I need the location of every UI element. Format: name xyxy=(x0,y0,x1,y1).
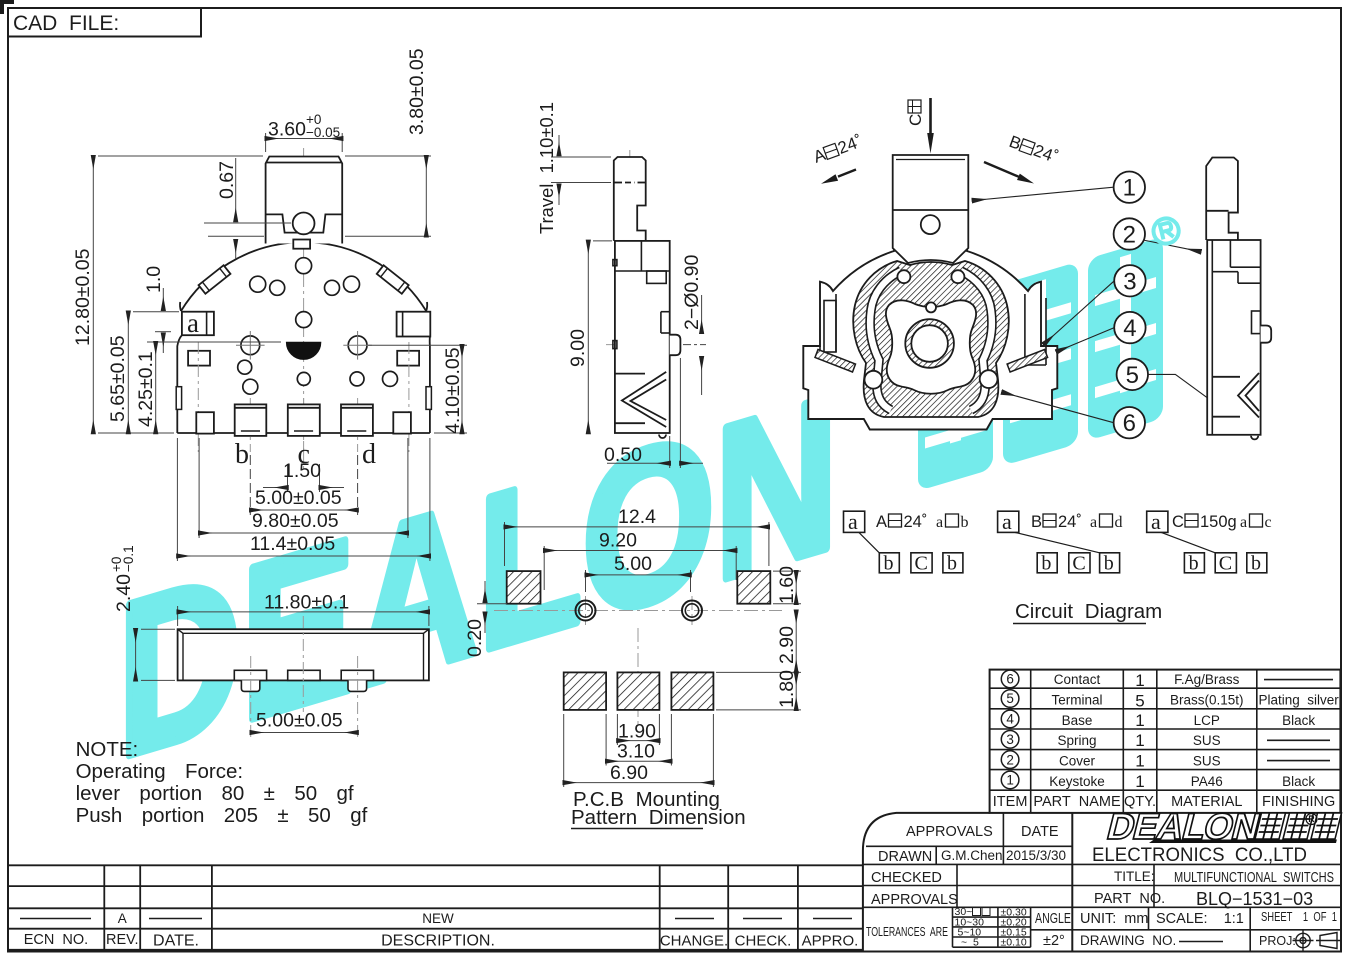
svg-text:Operating Force:: Operating Force: xyxy=(76,760,244,783)
svg-text:2: 2 xyxy=(1123,222,1136,249)
svg-text:FINISHING: FINISHING xyxy=(1262,794,1335,810)
svg-text:3: 3 xyxy=(1006,732,1014,747)
svg-text:C: C xyxy=(1219,553,1232,575)
svg-text:PROJ:: PROJ: xyxy=(1259,934,1296,948)
svg-text:Base: Base xyxy=(1062,713,1093,728)
svg-text:APPROVALS: APPROVALS xyxy=(906,824,993,840)
svg-text:2.90: 2.90 xyxy=(776,626,798,664)
svg-text:SCALE: 1:1: SCALE: 1:1 xyxy=(1156,911,1244,927)
svg-text:6.90: 6.90 xyxy=(610,762,648,784)
svg-text:1.90: 1.90 xyxy=(618,721,656,743)
svg-text:b: b xyxy=(1104,553,1114,575)
svg-text:5: 5 xyxy=(1135,692,1144,711)
svg-text:Spring: Spring xyxy=(1057,733,1096,748)
svg-text:PA46: PA46 xyxy=(1191,774,1223,789)
svg-text:Keystoke: Keystoke xyxy=(1049,774,1105,789)
svg-text:LCP: LCP xyxy=(1194,713,1220,728)
svg-text:~ 5: ~ 5 xyxy=(961,936,979,948)
svg-text:2: 2 xyxy=(1006,752,1014,767)
svg-text:Pattern Dimension: Pattern Dimension xyxy=(571,806,746,829)
svg-text:−0.1: −0.1 xyxy=(121,545,136,572)
svg-text:DESCRIPTION.: DESCRIPTION. xyxy=(381,933,495,950)
svg-text:24˚: 24˚ xyxy=(904,513,928,531)
svg-text:C: C xyxy=(1072,553,1085,575)
svg-text:SUS: SUS xyxy=(1193,754,1221,769)
svg-text:APPRO.: APPRO. xyxy=(802,933,859,950)
svg-text:b: b xyxy=(884,553,894,575)
svg-text:4: 4 xyxy=(1123,315,1136,342)
svg-text:2.40: 2.40 xyxy=(113,574,135,612)
svg-text:2015/3/30: 2015/3/30 xyxy=(1006,848,1066,863)
svg-text:Black: Black xyxy=(1282,713,1315,728)
svg-text:C: C xyxy=(906,114,925,126)
svg-text:1: 1 xyxy=(1135,752,1144,771)
svg-text:4: 4 xyxy=(1006,712,1014,727)
svg-text:1.50: 1.50 xyxy=(283,460,321,482)
svg-text:A: A xyxy=(118,911,127,926)
svg-text:0.50: 0.50 xyxy=(604,444,642,466)
svg-text:1: 1 xyxy=(1135,731,1144,750)
svg-text:24˚: 24˚ xyxy=(1058,513,1082,531)
svg-text:Terminal: Terminal xyxy=(1051,693,1102,708)
svg-text:150g: 150g xyxy=(1200,513,1237,531)
svg-text:UNIT: mm: UNIT: mm xyxy=(1080,911,1148,927)
svg-text:C: C xyxy=(915,553,928,575)
svg-text:3.80±0.05: 3.80±0.05 xyxy=(406,48,428,135)
svg-text:5.00±0.05: 5.00±0.05 xyxy=(255,487,342,509)
svg-text:a: a xyxy=(848,509,858,534)
svg-text:9.20: 9.20 xyxy=(599,530,637,552)
svg-text:lever portion 80 ± 50 gf: lever portion 80 ± 50 gf xyxy=(76,782,354,805)
svg-text:BLQ−1531−03: BLQ−1531−03 xyxy=(1196,889,1313,909)
svg-text:0.20: 0.20 xyxy=(464,619,486,657)
svg-text:b: b xyxy=(1041,553,1051,575)
svg-text:11.4±0.05: 11.4±0.05 xyxy=(250,533,335,555)
svg-text:DRAWING NO.: DRAWING NO. xyxy=(1080,933,1176,948)
svg-text:1: 1 xyxy=(1135,711,1144,730)
svg-text:5.65±0.05: 5.65±0.05 xyxy=(107,335,129,422)
svg-text:−0.05: −0.05 xyxy=(306,125,340,140)
svg-text:A: A xyxy=(876,513,887,531)
svg-text:b: b xyxy=(947,553,957,575)
svg-text:REV.: REV. xyxy=(106,932,139,948)
svg-text:DATE: DATE xyxy=(1021,824,1059,840)
svg-text:G.M.Chen: G.M.Chen xyxy=(941,848,1003,863)
svg-text:5.00: 5.00 xyxy=(614,553,652,575)
svg-text:9.80±0.05: 9.80±0.05 xyxy=(252,510,339,532)
svg-text:11.80±0.1: 11.80±0.1 xyxy=(264,592,349,614)
svg-text:12.80±0.05: 12.80±0.05 xyxy=(72,248,94,346)
svg-text:3: 3 xyxy=(1123,268,1136,295)
svg-text:5: 5 xyxy=(1006,691,1014,706)
svg-text:DRAWN: DRAWN xyxy=(878,849,932,865)
svg-text:a: a xyxy=(1002,509,1012,534)
svg-text:1.0: 1.0 xyxy=(143,266,165,293)
svg-text:TITLE:: TITLE: xyxy=(1114,869,1155,884)
svg-text:APPROVALS: APPROVALS xyxy=(871,892,958,908)
svg-text:a: a xyxy=(1090,514,1097,531)
svg-text:b: b xyxy=(961,514,969,531)
svg-text:Push portion 205 ± 50 gf: Push portion 205 ± 50 gf xyxy=(76,804,368,827)
svg-text:CAD FILE:: CAD FILE: xyxy=(13,12,119,35)
svg-text:ELECTRONICS CO.,LTD: ELECTRONICS CO.,LTD xyxy=(1092,845,1307,866)
svg-text:±2°: ±2° xyxy=(1043,933,1065,949)
svg-text:1: 1 xyxy=(1123,175,1136,202)
svg-text:SUS: SUS xyxy=(1193,733,1221,748)
svg-text:Plating silver: Plating silver xyxy=(1258,693,1339,708)
svg-text:0.67: 0.67 xyxy=(216,161,238,199)
svg-text:5: 5 xyxy=(1126,362,1139,389)
svg-text:PART NAME: PART NAME xyxy=(1033,794,1121,810)
svg-text:1.80: 1.80 xyxy=(776,670,798,708)
svg-text:a: a xyxy=(1240,514,1247,531)
svg-text:a: a xyxy=(187,308,199,338)
svg-text:PART NO.: PART NO. xyxy=(1094,891,1165,907)
svg-text:B: B xyxy=(1031,513,1042,531)
svg-text:3.10: 3.10 xyxy=(617,741,655,763)
svg-text:2−Ø0.90: 2−Ø0.90 xyxy=(681,254,703,330)
svg-text:Travel 1.10±0.1: Travel 1.10±0.1 xyxy=(536,102,557,234)
svg-text:±0.10: ±0.10 xyxy=(1001,936,1027,948)
svg-text:NOTE:: NOTE: xyxy=(76,738,139,761)
svg-text:Brass(0.15t): Brass(0.15t) xyxy=(1170,693,1244,708)
svg-text:4.10±0.05: 4.10±0.05 xyxy=(442,347,464,434)
svg-text:a: a xyxy=(1151,509,1161,534)
svg-text:ITEM: ITEM xyxy=(993,794,1028,810)
svg-text:NEW: NEW xyxy=(422,911,454,926)
svg-text:1: 1 xyxy=(1006,773,1014,788)
svg-text:12.4: 12.4 xyxy=(618,506,656,528)
svg-text:C: C xyxy=(1172,513,1184,531)
svg-text:c: c xyxy=(1265,514,1272,531)
svg-text:6: 6 xyxy=(1006,672,1014,687)
svg-text:a: a xyxy=(936,514,943,531)
svg-text:3.60: 3.60 xyxy=(268,119,306,141)
svg-text:5.00±0.05: 5.00±0.05 xyxy=(256,710,343,732)
svg-text:b: b xyxy=(235,439,249,470)
svg-text:d: d xyxy=(1115,514,1123,531)
svg-text:Circuit Diagram: Circuit Diagram xyxy=(1015,600,1162,623)
svg-text:d: d xyxy=(362,439,376,470)
svg-text:Contact: Contact xyxy=(1054,672,1101,687)
svg-text:9.00: 9.00 xyxy=(567,329,589,367)
svg-text:b: b xyxy=(1251,553,1261,575)
svg-text:TOLERANCES ARE: TOLERANCES ARE xyxy=(866,925,948,939)
svg-text:F.Ag/Brass: F.Ag/Brass xyxy=(1174,672,1240,687)
svg-text:b: b xyxy=(1189,553,1199,575)
svg-text:CHANGE.: CHANGE. xyxy=(660,933,728,950)
svg-text:CHECKED: CHECKED xyxy=(871,870,942,886)
svg-text:6: 6 xyxy=(1123,410,1136,437)
svg-text:DATE.: DATE. xyxy=(153,933,199,950)
svg-text:4.25±0.1: 4.25±0.1 xyxy=(135,351,157,427)
svg-text:ECN NO.: ECN NO. xyxy=(24,932,88,948)
svg-text:1: 1 xyxy=(1135,671,1144,690)
svg-text:ANGLE: ANGLE xyxy=(1035,911,1071,927)
svg-text:Cover: Cover xyxy=(1059,754,1096,769)
svg-text:1.60: 1.60 xyxy=(776,566,798,604)
svg-text:CHECK.: CHECK. xyxy=(735,933,792,950)
svg-text:1: 1 xyxy=(1135,772,1144,791)
svg-text:Black: Black xyxy=(1282,774,1315,789)
svg-text:MULTIFUNCTIONAL SWITCHS: MULTIFUNCTIONAL SWITCHS xyxy=(1174,870,1334,886)
svg-text:SHEET 1 OF 1: SHEET 1 OF 1 xyxy=(1261,910,1337,924)
